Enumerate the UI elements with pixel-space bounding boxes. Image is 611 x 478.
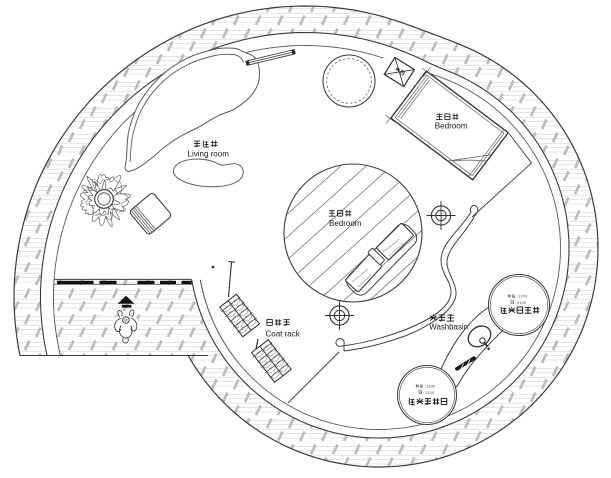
svg-text:: 2100: : 2100 <box>423 390 435 395</box>
svg-text:: 1100: : 1100 <box>424 384 436 389</box>
svg-text:: 2100: : 2100 <box>515 300 527 305</box>
svg-text:Living room: Living room <box>188 150 230 159</box>
svg-text:Bedroom: Bedroom <box>435 121 468 130</box>
svg-text:Bedroom: Bedroom <box>329 219 362 228</box>
svg-text:Coat rack: Coat rack <box>266 330 301 339</box>
svg-text:Washbasin: Washbasin <box>429 323 468 332</box>
svg-text:: 1100: : 1100 <box>516 294 528 299</box>
